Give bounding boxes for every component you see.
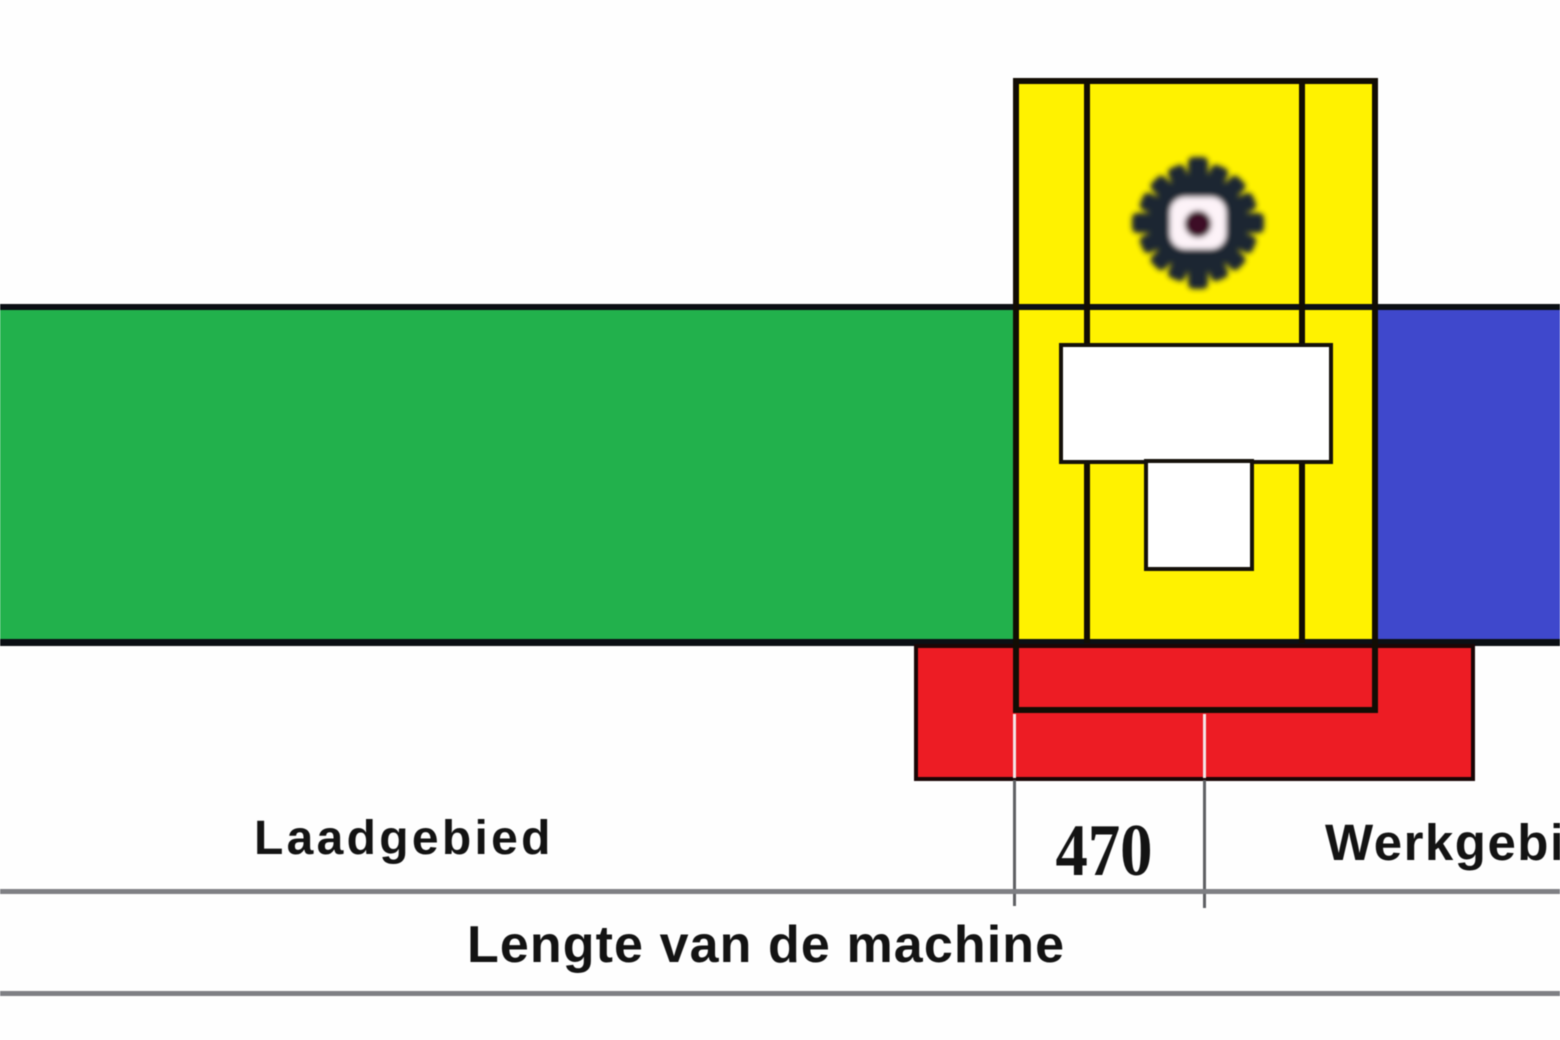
svg-text:Laadgebied: Laadgebied bbox=[254, 812, 554, 865]
svg-text:470: 470 bbox=[1056, 810, 1153, 892]
svg-text:Lengte van de machine: Lengte van de machine bbox=[467, 916, 1065, 974]
svg-text:Werkgebied: Werkgebied bbox=[1325, 814, 1560, 871]
